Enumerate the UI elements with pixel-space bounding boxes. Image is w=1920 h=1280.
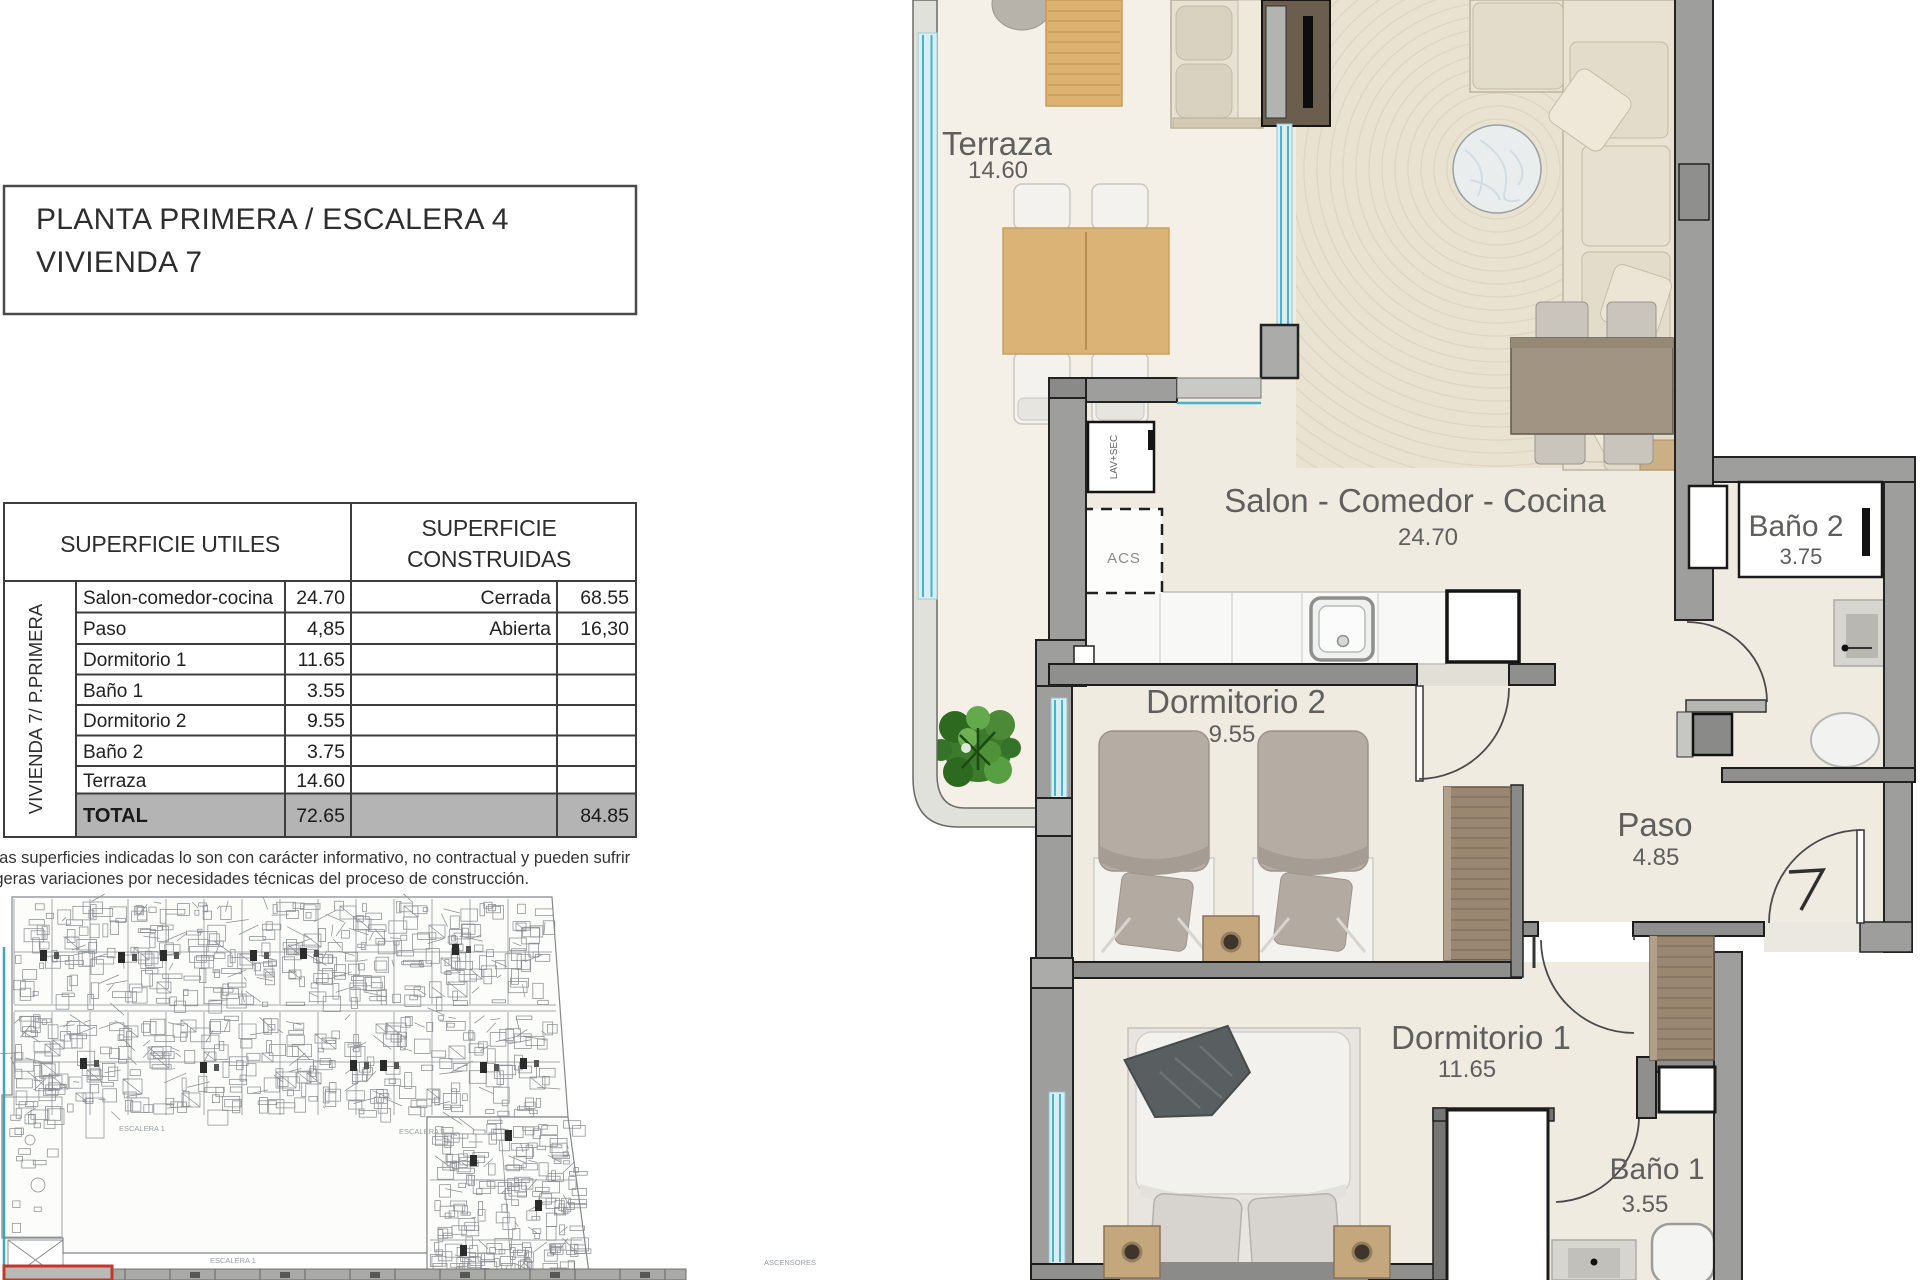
svg-text:4.85: 4.85: [1633, 844, 1680, 871]
svg-text:3.75: 3.75: [307, 741, 345, 763]
svg-text:Dormitorio 1: Dormitorio 1: [1391, 1019, 1571, 1056]
svg-text:11.65: 11.65: [1438, 1056, 1496, 1083]
svg-text:3.75: 3.75: [1780, 544, 1823, 569]
svg-text:68.55: 68.55: [580, 587, 629, 609]
svg-text:24.70: 24.70: [1398, 524, 1458, 551]
svg-text:Paso: Paso: [1617, 806, 1692, 843]
svg-text:11.65: 11.65: [298, 649, 346, 671]
svg-text:Dormitorio 1: Dormitorio 1: [83, 650, 186, 671]
svg-text:Las superficies indicadas lo s: Las superficies indicadas lo son con car…: [0, 849, 631, 867]
svg-text:Baño 2: Baño 2: [83, 742, 143, 763]
svg-text:Cerrada: Cerrada: [481, 587, 552, 609]
svg-text:9.55: 9.55: [1209, 721, 1256, 748]
svg-text:16,30: 16,30: [580, 618, 629, 640]
svg-text:Terraza: Terraza: [83, 771, 147, 792]
svg-text:Abierta: Abierta: [489, 618, 551, 640]
svg-text:Dormitorio 2: Dormitorio 2: [83, 711, 186, 732]
svg-text:ESCALERA 1: ESCALERA 1: [210, 1256, 256, 1265]
svg-text:ACS: ACS: [1107, 550, 1141, 567]
svg-text:ESCALERA 3: ESCALERA 3: [399, 1127, 445, 1136]
svg-text:Paso: Paso: [83, 619, 126, 640]
svg-text:LAV+SEC: LAV+SEC: [1109, 435, 1120, 480]
svg-text:84.85: 84.85: [580, 805, 629, 827]
svg-text:Dormitorio 2: Dormitorio 2: [1146, 683, 1326, 720]
svg-text:Salon - Comedor - Cocina: Salon - Comedor - Cocina: [1224, 482, 1606, 519]
svg-text:Salon-comedor-cocina: Salon-comedor-cocina: [83, 588, 274, 609]
svg-text:4,85: 4,85: [307, 618, 345, 640]
svg-text:CONSTRUIDAS: CONSTRUIDAS: [407, 546, 571, 572]
svg-text:Baño 1: Baño 1: [83, 681, 143, 702]
svg-text:VIVIENDA 7: VIVIENDA 7: [36, 246, 202, 279]
svg-text:VIVIENDA 7/ P.PRIMERA: VIVIENDA 7/ P.PRIMERA: [25, 603, 46, 814]
svg-text:14.60: 14.60: [296, 770, 345, 792]
svg-text:72.65: 72.65: [296, 805, 345, 827]
svg-text:Baño 2: Baño 2: [1748, 510, 1843, 543]
svg-text:14.60: 14.60: [968, 157, 1028, 184]
svg-text:PLANTA PRIMERA / ESCALERA 4: PLANTA PRIMERA / ESCALERA 4: [36, 203, 509, 236]
svg-text:3.55: 3.55: [307, 680, 345, 702]
svg-text:3.55: 3.55: [1622, 1191, 1669, 1218]
svg-text:ESCALERA 1: ESCALERA 1: [119, 1124, 165, 1133]
svg-text:9.55: 9.55: [307, 710, 345, 732]
svg-text:SUPERFICIE: SUPERFICIE: [421, 515, 556, 541]
svg-text:Baño 1: Baño 1: [1609, 1153, 1704, 1186]
svg-text:ligeras variaciones por necesi: ligeras variaciones por necesidades técn…: [0, 870, 529, 888]
svg-text:ASCENSORES: ASCENSORES: [764, 1258, 816, 1267]
svg-text:TOTAL: TOTAL: [83, 805, 148, 827]
svg-text:24.70: 24.70: [296, 587, 345, 609]
svg-text:SUPERFICIE UTILES: SUPERFICIE UTILES: [60, 531, 280, 557]
